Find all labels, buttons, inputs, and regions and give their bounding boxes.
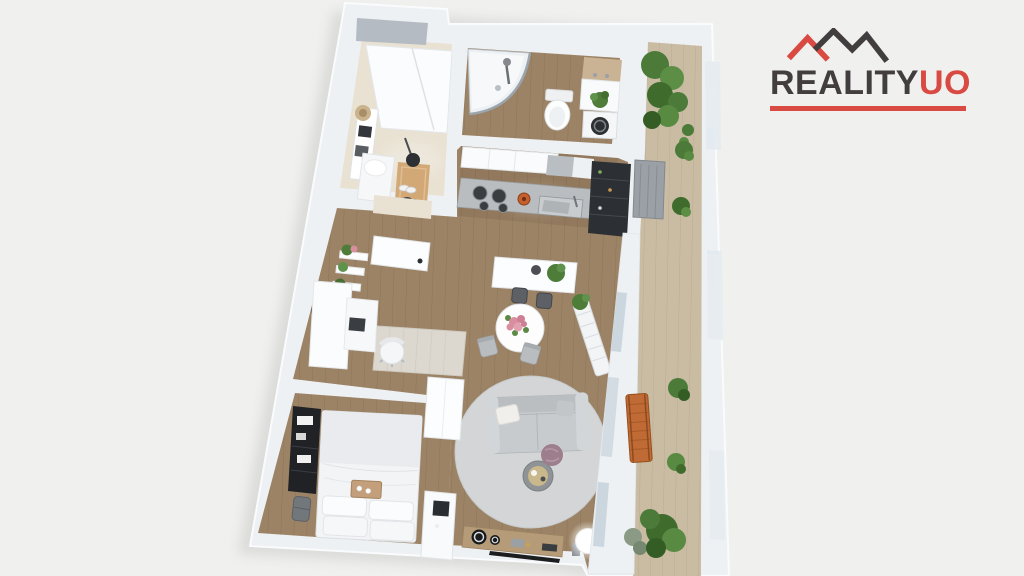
fridge-pantry-unit — [588, 161, 631, 237]
kitchen-sink — [538, 196, 583, 218]
shower-drain — [495, 85, 501, 91]
coffee-table — [523, 461, 553, 491]
built-in-oven — [546, 155, 574, 177]
brand-logo: REALITYUO — [770, 28, 972, 111]
bar-vase — [531, 265, 541, 275]
hat — [355, 105, 371, 121]
zigzag-roofline-icon — [784, 28, 896, 64]
black-wardrobe — [288, 406, 321, 494]
bed — [316, 410, 423, 542]
logo-word-accent: UO — [919, 64, 971, 102]
speaker-small — [490, 535, 500, 545]
sofa — [485, 392, 590, 454]
media-box — [511, 538, 525, 547]
washing-machine — [582, 111, 617, 139]
closet-block — [424, 377, 464, 440]
speaker-large — [472, 530, 487, 545]
dark-device — [542, 543, 558, 551]
bedroom-cabinet — [421, 491, 456, 560]
desk-laptop — [349, 317, 366, 331]
lounge-chair — [292, 496, 311, 522]
shower-head — [503, 58, 511, 66]
real-estate-floorplan-page: { "logo": { "word_primary": "REALITY", "… — [0, 0, 1024, 576]
balcony-chair — [626, 393, 653, 462]
sofa-pillow-gray — [556, 400, 574, 417]
cabinet-dark-object — [433, 500, 450, 516]
cooking-pot — [518, 193, 530, 205]
ac-unit — [633, 160, 665, 219]
pouf — [541, 444, 563, 466]
logo-underline — [770, 106, 966, 111]
logo-wordmark: REALITYUO — [770, 66, 972, 102]
logo-word-primary: REALITY — [770, 64, 919, 102]
gold-trinket — [526, 543, 530, 547]
bed-tray — [351, 480, 382, 499]
door-handle — [418, 259, 423, 264]
